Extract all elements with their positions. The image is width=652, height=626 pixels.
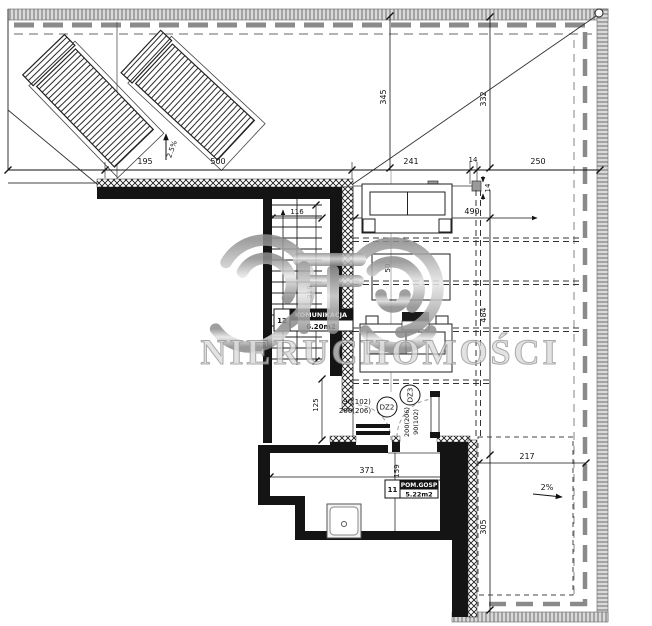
watermark: NIERUCHOMOŚCI <box>200 240 559 372</box>
sofa-1 <box>362 184 452 233</box>
room-number: 11 <box>388 486 398 494</box>
terrace-slope-label: 2.5% <box>165 139 179 159</box>
terrace-slope-marker: 2.5% <box>165 134 179 160</box>
upper-terrace: 2.5% <box>8 9 603 184</box>
dim-14-top: 14 <box>469 156 478 164</box>
door-dz3-height: 200(206) <box>403 407 411 437</box>
room-label-pom-gosp: 11 POM.GOSP 5.22m2 <box>385 480 438 499</box>
insulated-wall <box>342 187 353 411</box>
door-code-dz3: DZ3 <box>407 388 415 403</box>
door-dz2-width: 90(102) <box>343 398 371 406</box>
doors: 90(102) 200(206) DZ2 DZ3 200(206) 90(102… <box>339 385 440 440</box>
watermark-logo-t <box>293 253 366 334</box>
dim-345: 345 <box>379 89 388 104</box>
dim-490: 490 <box>464 207 479 216</box>
door-code-dz2: DZ2 <box>380 404 395 412</box>
shower-tray <box>327 504 361 538</box>
dim-217: 217 <box>519 452 534 461</box>
dim-332: 332 <box>479 91 488 106</box>
dim-371: 371 <box>359 466 374 475</box>
dim-14-side: 14 <box>484 183 492 192</box>
watermark-brand-text: NIERUCHOMOŚCI <box>200 332 559 372</box>
floor-plan-canvas: 2.5% 195 500 241 14 250 345 332 14 490 4… <box>0 0 652 626</box>
door-leaf-dz3 <box>430 391 440 438</box>
terrace-side-wall <box>452 540 468 617</box>
door-dz2-height: 200(206) <box>339 407 371 415</box>
right-boundary-hatch <box>597 9 608 621</box>
dim-250: 250 <box>530 157 545 166</box>
dim-159: 159 <box>393 464 401 477</box>
balcony-slope-marker: 2% <box>533 483 562 497</box>
door-dz3-width: 90(102) <box>412 409 420 435</box>
deck-chair-2 <box>119 28 265 170</box>
dim-241: 241 <box>403 157 418 166</box>
room-area: 5.22m2 <box>405 491 432 499</box>
dim-125: 125 <box>312 398 320 411</box>
dim-305: 305 <box>479 519 488 534</box>
dim-195: 195 <box>137 157 152 166</box>
top-boundary-hatch <box>8 9 608 20</box>
dim-500: 500 <box>210 157 225 166</box>
utility-room: 11 POM.GOSP 5.22m2 <box>327 480 438 538</box>
room-name: POM.GOSP <box>401 482 438 489</box>
balcony-slope-label: 2% <box>541 483 554 492</box>
chimney-block-2 <box>472 181 481 191</box>
floor-plan-drawing: 2.5% 195 500 241 14 250 345 332 14 490 4… <box>0 0 652 626</box>
survey-point-marker <box>595 9 603 17</box>
